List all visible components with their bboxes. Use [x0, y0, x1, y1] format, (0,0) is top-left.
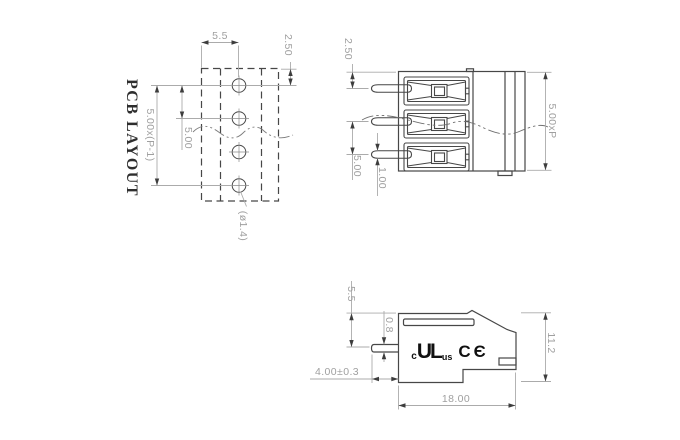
dim-pcb-pad-span: 5.5: [212, 30, 228, 42]
pcb-footprint-outline: [202, 69, 279, 202]
dim-side-body-height: 11.2: [545, 332, 557, 353]
pcb-layout-view: [151, 40, 297, 206]
terminal-cells: [404, 77, 469, 171]
dim-side-pin-offset: 5.5: [345, 286, 357, 302]
pcb-dimension-lines: [151, 43, 297, 207]
dim-pcb-edge-offset: 2.50: [282, 34, 294, 56]
certification-marks: c UL us CЄ: [411, 340, 488, 364]
technical-drawing-sheet: PCB LAYOUT 5.5 2.50 5.00x(P-1) 5.00 (ø1.…: [0, 0, 680, 440]
ul-logo: UL: [417, 340, 441, 364]
dim-pcb-total-pitch: 5.00x(P-1): [144, 108, 156, 161]
pcb-dimension-arrows: [155, 40, 293, 185]
dim-front-total-width: 5.00xP: [546, 103, 558, 138]
dim-front-pin-width: 1.00: [376, 167, 388, 189]
dim-side-pin-thickness: 0.8: [383, 317, 395, 333]
mounting-holes: [229, 76, 249, 196]
pcb-layout-title: PCB LAYOUT: [122, 79, 140, 197]
dim-pcb-pitch: 5.00: [182, 127, 194, 149]
dim-front-pitch: 5.00: [351, 155, 363, 177]
ce-mark: CЄ: [458, 342, 488, 362]
dim-side-pin-length: 4.00±0.3: [315, 366, 359, 378]
dim-pcb-hole-diameter: (ø1.4): [237, 211, 249, 241]
front-dimension-arrows: [350, 72, 547, 170]
ul-us-suffix: us: [442, 352, 453, 364]
dim-front-edge-offset: 2.50: [342, 38, 354, 60]
dim-side-body-depth: 18.00: [442, 393, 470, 405]
